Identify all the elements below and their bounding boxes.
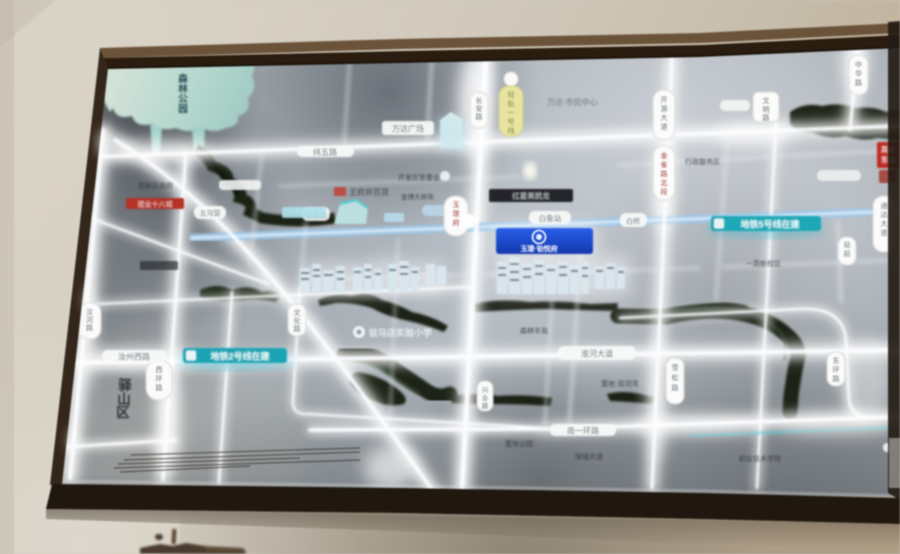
svg-text:路: 路 [156,383,163,392]
svg-text:路: 路 [476,112,483,121]
svg-text:达: 达 [881,210,888,219]
svg-text:路: 路 [855,78,862,87]
svg-text:万达广场: 万达广场 [392,124,424,134]
svg-text:纬五路: 纬五路 [313,147,337,157]
svg-text:白象站: 白象站 [539,213,562,223]
svg-text:金博大商场: 金博大商场 [401,192,434,201]
svg-text:文: 文 [763,96,770,105]
svg-text:业: 业 [482,393,489,402]
svg-text:轨: 轨 [508,99,515,108]
svg-text:驿城大道: 驿城大道 [575,452,603,461]
svg-text:河: 河 [86,316,93,324]
svg-text:东: 东 [833,356,840,365]
svg-text:置地公园: 置地公园 [505,439,533,448]
svg-text:璟: 璟 [453,210,460,218]
svg-text:建业十八城: 建业十八城 [138,200,173,209]
svg-text:北: 北 [661,179,668,187]
svg-text:道: 道 [661,122,668,131]
svg-text:华: 华 [855,69,862,78]
svg-text:通: 通 [881,201,888,210]
svg-text:兴: 兴 [482,385,489,394]
svg-text:站: 站 [844,240,851,249]
svg-text:安: 安 [476,104,483,113]
svg-text:行政服务区: 行政服务区 [685,157,720,166]
svg-text:文: 文 [294,308,301,317]
svg-text:道: 道 [881,228,888,237]
svg-text:玉璟·铂悦府: 玉璟·铂悦府 [520,244,557,253]
svg-text:轻: 轻 [508,90,515,99]
svg-text:森林半岛: 森林半岛 [520,326,548,335]
svg-text:环: 环 [833,366,840,374]
svg-text:雀: 雀 [661,160,668,169]
svg-text:中: 中 [855,60,862,69]
svg-text:万达·市民中心: 万达·市民中心 [547,97,598,107]
svg-text:线: 线 [508,126,515,135]
svg-text:园: 园 [178,104,188,115]
svg-text:置地·双河湾: 置地·双河湾 [601,379,638,388]
svg-text:一: 一 [508,110,515,117]
svg-text:前: 前 [844,249,851,258]
svg-text:路: 路 [86,323,93,332]
svg-text:开: 开 [661,96,668,104]
svg-text:化: 化 [294,316,301,325]
svg-text:路: 路 [482,401,489,410]
svg-text:区: 区 [116,405,130,420]
svg-text:路: 路 [661,169,668,178]
svg-text:职业技术学院: 职业技术学院 [739,454,781,463]
svg-text:路: 路 [833,374,840,383]
svg-text:号: 号 [508,118,515,126]
svg-text:五沟营: 五沟营 [200,209,221,218]
svg-text:地铁2号线在建: 地铁2号线在建 [210,351,270,362]
svg-text:松: 松 [672,373,679,382]
svg-text:开发区管委会: 开发区管委会 [398,173,440,182]
svg-text:路: 路 [763,113,770,122]
svg-text:长: 长 [476,96,483,105]
svg-text:路: 路 [672,383,679,392]
svg-text:明: 明 [763,106,770,114]
svg-text:南一环路: 南一环路 [567,426,599,436]
svg-text:雪: 雪 [672,364,679,372]
svg-text:白桥: 白桥 [626,217,640,226]
svg-text:高新区政府: 高新区政府 [138,181,173,190]
svg-text:地铁5号线在建: 地铁5号线在建 [740,219,800,230]
svg-text:路: 路 [294,324,301,333]
svg-text:淮河大道: 淮河大道 [581,349,613,359]
svg-text:王府井百货: 王府井百货 [349,187,389,197]
svg-text:红星美凯龙: 红星美凯龙 [512,191,550,201]
svg-text:汝州西路: 汝州西路 [118,352,150,362]
svg-text:大: 大 [661,113,668,122]
svg-text:驿: 驿 [118,378,132,393]
svg-text:环: 环 [156,375,163,383]
svg-text:驻马店实验小学: 驻马店实验小学 [369,327,432,338]
svg-text:源: 源 [661,104,668,113]
svg-text:大: 大 [881,219,888,228]
svg-text:府: 府 [453,218,460,227]
svg-text:玉: 玉 [453,201,460,209]
svg-text:一高新校区: 一高新校区 [746,259,781,268]
svg-text:金: 金 [661,151,668,160]
svg-text:西: 西 [156,366,163,374]
svg-text:段: 段 [661,187,668,196]
